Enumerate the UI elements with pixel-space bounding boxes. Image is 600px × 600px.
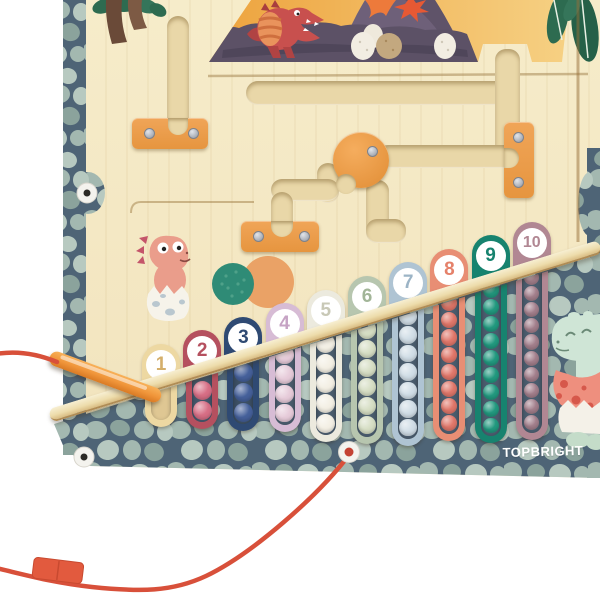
bead (483, 418, 499, 434)
bead (483, 367, 499, 383)
bead (483, 384, 499, 400)
bead (358, 378, 376, 396)
bead (275, 385, 293, 403)
number-circle: 10 (517, 228, 547, 258)
bead (524, 334, 539, 349)
bead (483, 350, 499, 366)
bead (524, 351, 539, 366)
bead (399, 400, 417, 418)
bead (483, 333, 499, 349)
bead (193, 381, 212, 400)
bead (275, 365, 293, 383)
bead (358, 340, 376, 358)
bead (316, 414, 335, 433)
bead (399, 345, 417, 363)
bead (399, 326, 417, 344)
bead (399, 363, 417, 381)
bead (441, 329, 457, 345)
number-circle: 7 (393, 268, 423, 298)
bead (358, 359, 376, 377)
product-photo-magnetic-counting-maze: 12345678910 TOPBRIGHT (0, 0, 600, 600)
bead (316, 354, 335, 373)
bead (316, 394, 335, 413)
bead (316, 374, 335, 393)
bead (234, 403, 253, 422)
number-circle: 8 (434, 255, 464, 285)
bead (483, 316, 499, 332)
bead (193, 401, 212, 420)
brand-logo: TOPBRIGHT (492, 443, 594, 461)
number-circle: 9 (476, 241, 506, 271)
bead (234, 383, 253, 402)
bead (483, 299, 499, 315)
bead (483, 401, 499, 417)
